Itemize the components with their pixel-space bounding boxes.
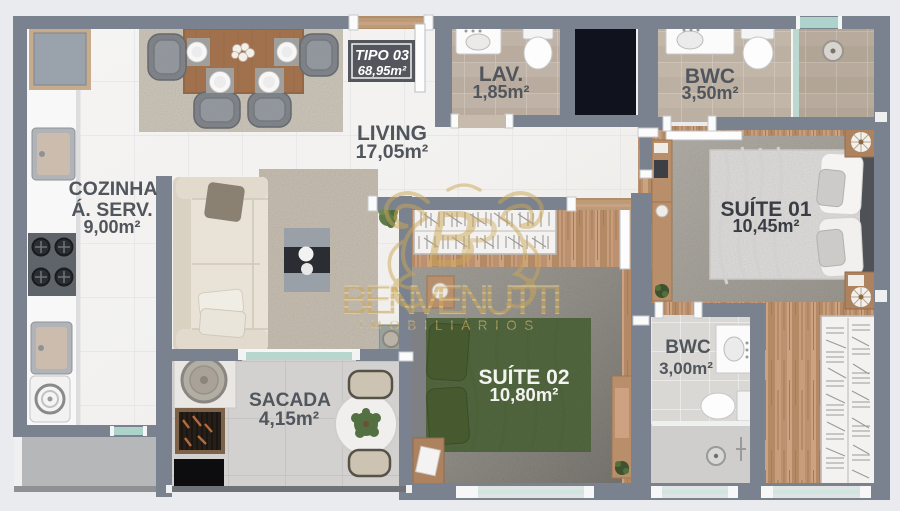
svg-text:10,45m²: 10,45m² [732, 216, 799, 236]
svg-text:3,00m²: 3,00m² [659, 359, 713, 378]
svg-text:17,05m²: 17,05m² [356, 141, 429, 163]
svg-text:1,85m²: 1,85m² [472, 82, 529, 102]
svg-text:TIPO 03: TIPO 03 [355, 48, 409, 64]
svg-text:10,80m²: 10,80m² [490, 384, 559, 405]
svg-text:3,50m²: 3,50m² [681, 83, 738, 103]
svg-text:P: P [459, 206, 498, 271]
svg-text:BENVENUTTI: BENVENUTTI [341, 276, 563, 323]
svg-text:9,00m²: 9,00m² [83, 217, 140, 237]
svg-text:68,95m²: 68,95m² [358, 63, 407, 78]
svg-text:IMOBILIÁRIOS: IMOBILIÁRIOS [359, 318, 541, 333]
svg-text:BWC: BWC [665, 337, 711, 358]
svg-text:SACADA: SACADA [249, 389, 331, 411]
svg-text:4,15m²: 4,15m² [259, 409, 319, 430]
svg-text:COZINHA: COZINHA [69, 178, 158, 200]
